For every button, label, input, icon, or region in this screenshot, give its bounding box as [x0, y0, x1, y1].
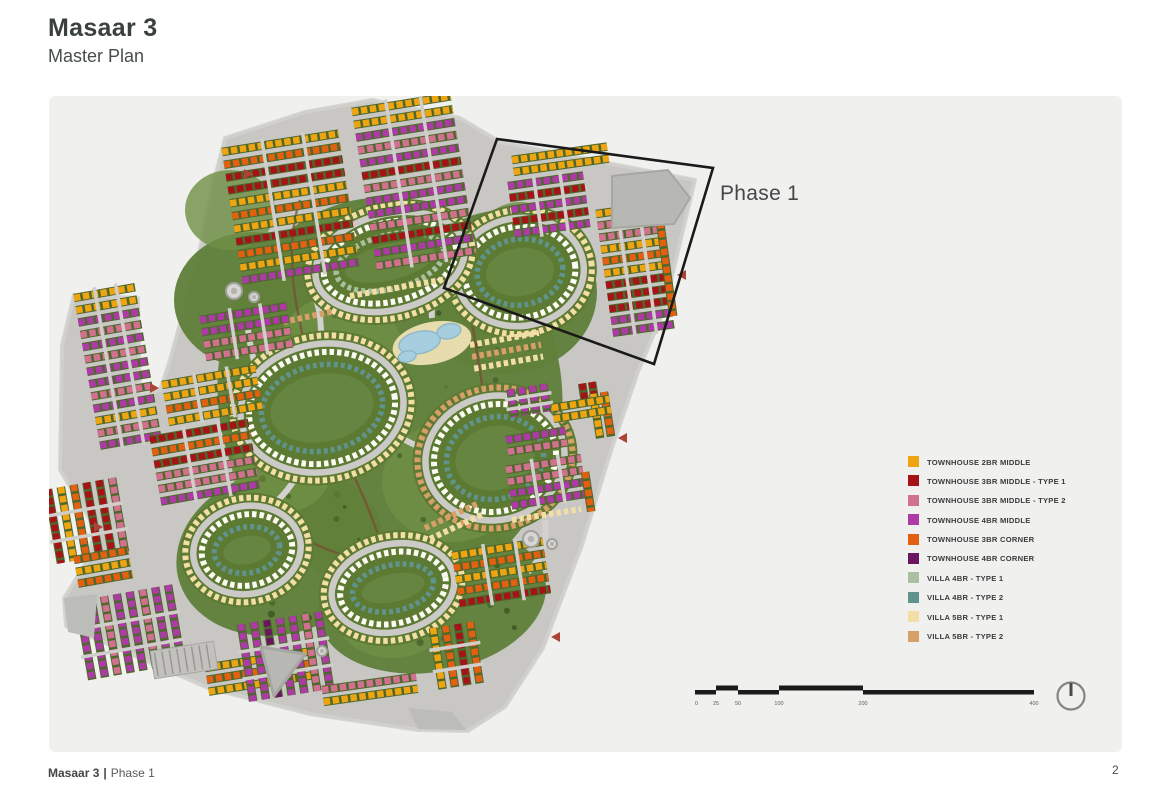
legend-label: VILLA 5BR - TYPE 1 [927, 612, 1003, 622]
header: Masaar 3 Master Plan [48, 14, 157, 67]
legend-item: VILLA 5BR - TYPE 1 [908, 611, 1066, 622]
legend-label: TOWNHOUSE 3BR CORNER [927, 534, 1034, 544]
legend-item: TOWNHOUSE 2BR MIDDLE [908, 456, 1066, 467]
legend-item: TOWNHOUSE 3BR CORNER [908, 534, 1066, 545]
page-title: Masaar 3 [48, 14, 157, 43]
legend-swatch [908, 534, 919, 545]
legend-item: TOWNHOUSE 3BR MIDDLE - TYPE 1 [908, 475, 1066, 486]
scale-label: 100 [774, 701, 783, 707]
legend: TOWNHOUSE 2BR MIDDLETOWNHOUSE 3BR MIDDLE… [908, 456, 1066, 650]
legend-swatch [908, 631, 919, 642]
legend-label: TOWNHOUSE 3BR MIDDLE - TYPE 1 [927, 476, 1066, 486]
scale-label: 50 [735, 701, 741, 707]
legend-label: TOWNHOUSE 3BR MIDDLE - TYPE 2 [927, 495, 1066, 505]
footer-project: Masaar 3 [48, 766, 99, 780]
footer-section: Phase 1 [111, 766, 155, 780]
legend-item: TOWNHOUSE 4BR MIDDLE [908, 514, 1066, 525]
legend-swatch [908, 572, 919, 583]
map-panel: Phase 1 TOWNHOUSE 2BR MIDDLETOWNHOUSE 3B… [49, 96, 1122, 752]
north-arrow-icon [1053, 678, 1089, 714]
legend-label: VILLA 5BR - TYPE 2 [927, 631, 1003, 641]
scale-bar: 02550100200400 [694, 682, 1042, 712]
legend-item: VILLA 4BR - TYPE 2 [908, 592, 1066, 603]
footer-left: Masaar 3|Phase 1 [48, 766, 155, 780]
legend-label: TOWNHOUSE 4BR MIDDLE [927, 515, 1031, 525]
legend-swatch [908, 456, 919, 467]
legend-swatch [908, 611, 919, 622]
scale-label: 400 [1029, 701, 1038, 707]
scale-label: 0 [695, 701, 698, 707]
footer-separator: | [103, 766, 106, 780]
legend-label: VILLA 4BR - TYPE 2 [927, 592, 1003, 602]
scale-label: 200 [858, 701, 867, 707]
slide: Masaar 3 Master Plan Phase 1 TOWNHOUSE 2… [0, 0, 1170, 785]
legend-item: TOWNHOUSE 3BR MIDDLE - TYPE 2 [908, 495, 1066, 506]
legend-item: VILLA 5BR - TYPE 2 [908, 631, 1066, 642]
legend-label: VILLA 4BR - TYPE 1 [927, 573, 1003, 583]
legend-swatch [908, 475, 919, 486]
phase-1-label: Phase 1 [720, 182, 799, 206]
scale-label: 25 [713, 701, 719, 707]
legend-item: TOWNHOUSE 4BR CORNER [908, 553, 1066, 564]
legend-swatch [908, 592, 919, 603]
master-plan-map [49, 96, 769, 752]
legend-item: VILLA 4BR - TYPE 1 [908, 572, 1066, 583]
legend-swatch [908, 514, 919, 525]
page-number: 2 [1112, 763, 1119, 777]
legend-swatch [908, 553, 919, 564]
legend-swatch [908, 495, 919, 506]
page-subtitle: Master Plan [48, 46, 157, 67]
legend-label: TOWNHOUSE 2BR MIDDLE [927, 457, 1031, 467]
legend-label: TOWNHOUSE 4BR CORNER [927, 553, 1034, 563]
